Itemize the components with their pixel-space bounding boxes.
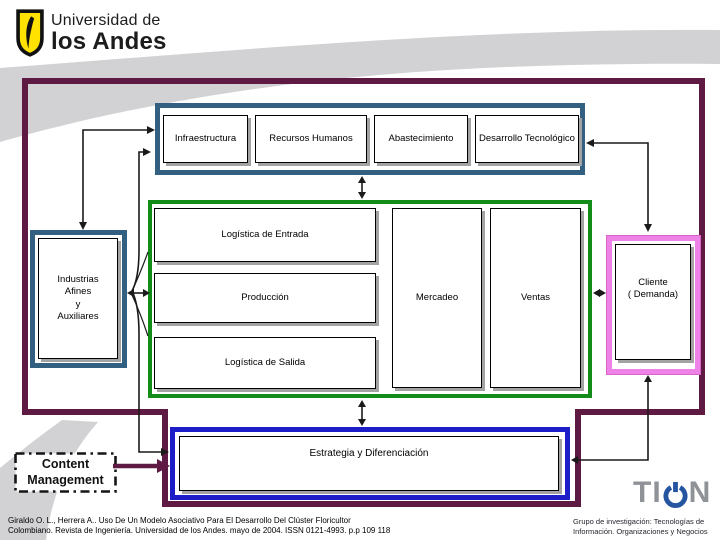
tion-logo: TI N — [633, 477, 711, 509]
box-cliente-demanda-label: Cliente ( Demanda) — [628, 277, 678, 302]
slide: Universidad de los Andes Infraestructura… — [0, 0, 720, 540]
box-infraestructura-label: Infraestructura — [175, 133, 236, 145]
box-recursos-humanos-label: Recursos Humanos — [269, 133, 352, 145]
box-logistica-entrada-label: Logística de Entrada — [221, 229, 308, 241]
brace-lower-curve — [132, 295, 148, 336]
box-estrategia-diferenciacion: Estrategia y Diferenciación — [179, 436, 559, 491]
box-mercadeo: Mercadeo — [392, 208, 482, 388]
university-logo: Universidad de los Andes — [16, 9, 167, 57]
content-management-box: Content Management — [15, 453, 116, 492]
box-ventas-label: Ventas — [521, 292, 550, 304]
power-button-icon — [663, 480, 688, 508]
box-infraestructura: Infraestructura — [163, 115, 248, 163]
university-shield-icon — [16, 9, 44, 57]
box-logistica-salida: Logística de Salida — [154, 337, 376, 389]
box-abastecimiento: Abastecimiento — [374, 115, 468, 163]
box-produccion-label: Producción — [241, 292, 289, 304]
citation-text: Giraldo O. L., Herrera A.. Uso De Un Mod… — [8, 516, 448, 536]
box-cliente-demanda: Cliente ( Demanda) — [615, 244, 691, 360]
box-abastecimiento-label: Abastecimiento — [389, 133, 454, 145]
content-management-arrowhead — [157, 459, 170, 473]
logo-text-line1: Universidad de — [51, 13, 167, 29]
connector-support-to-industrias — [83, 130, 147, 222]
box-estrategia-diferenciacion-label: Estrategia y Diferenciación — [310, 447, 429, 460]
box-mercadeo-label: Mercadeo — [416, 292, 458, 304]
box-recursos-humanos: Recursos Humanos — [255, 115, 367, 163]
box-desarrollo-tecnologico: Desarrollo Tecnológico — [475, 115, 579, 163]
research-group-text: Grupo de investigación: Tecnologías de I… — [573, 517, 718, 537]
connector-support-to-client — [594, 143, 648, 224]
box-industrias-afines-label: Industrias Afines y Auxiliares — [57, 274, 98, 323]
content-management-label: Content Management — [27, 457, 103, 488]
box-produccion: Producción — [154, 273, 376, 323]
box-ventas: Ventas — [490, 208, 581, 388]
box-logistica-entrada: Logística de Entrada — [154, 208, 376, 262]
box-desarrollo-tecnologico-label: Desarrollo Tecnológico — [479, 133, 575, 145]
brace-upper-curve — [132, 252, 148, 291]
box-logistica-salida-label: Logística de Salida — [225, 357, 305, 369]
box-industrias-afines: Industrias Afines y Auxiliares — [38, 238, 118, 359]
logo-text-line2: los Andes — [51, 30, 167, 54]
tion-logo-n: N — [689, 478, 712, 508]
tion-logo-ti: TI — [633, 478, 662, 508]
